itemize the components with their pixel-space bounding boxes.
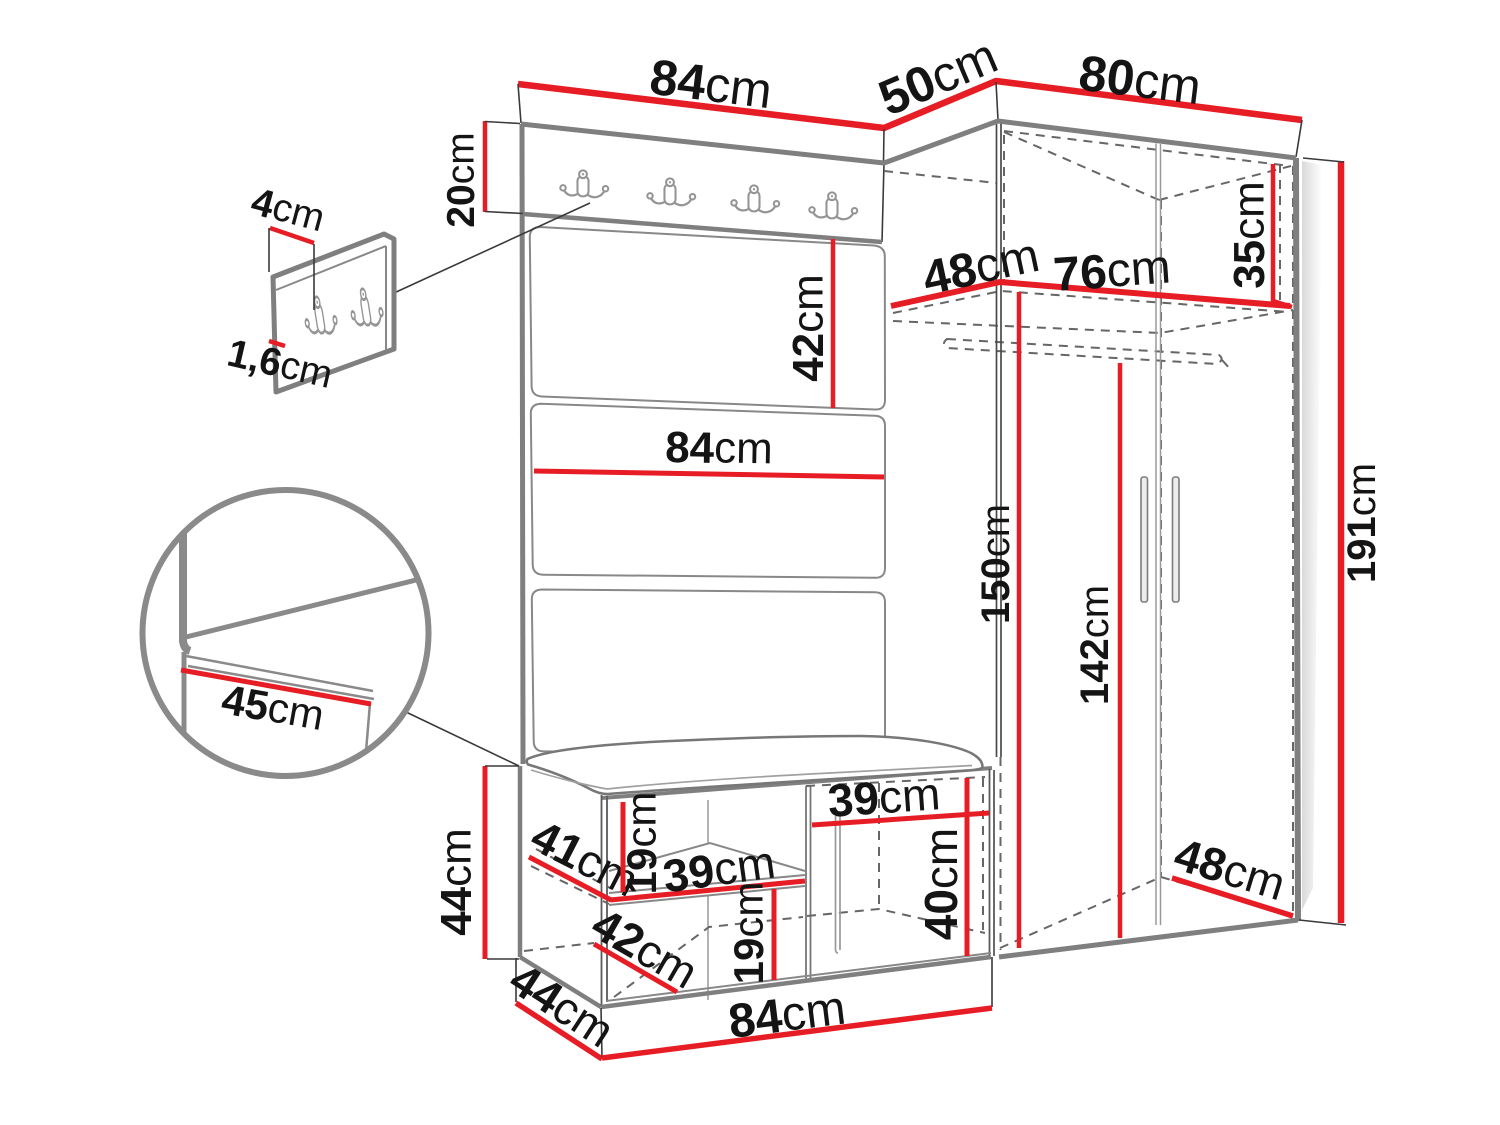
svg-text:20cm: 20cm xyxy=(440,132,483,227)
svg-text:42cm: 42cm xyxy=(784,274,833,382)
svg-text:19cm: 19cm xyxy=(618,792,665,895)
svg-text:150cm: 150cm xyxy=(974,504,1018,624)
svg-text:191cm: 191cm xyxy=(1340,463,1384,583)
svg-text:44cm: 44cm xyxy=(432,828,481,936)
svg-text:19cm: 19cm xyxy=(725,882,772,985)
svg-text:40cm: 40cm xyxy=(915,828,967,941)
svg-text:84cm: 84cm xyxy=(665,423,773,474)
svg-text:39cm: 39cm xyxy=(826,767,942,827)
svg-text:142cm: 142cm xyxy=(1073,585,1117,705)
svg-text:76cm: 76cm xyxy=(1052,240,1173,301)
svg-text:35cm: 35cm xyxy=(1225,181,1274,289)
